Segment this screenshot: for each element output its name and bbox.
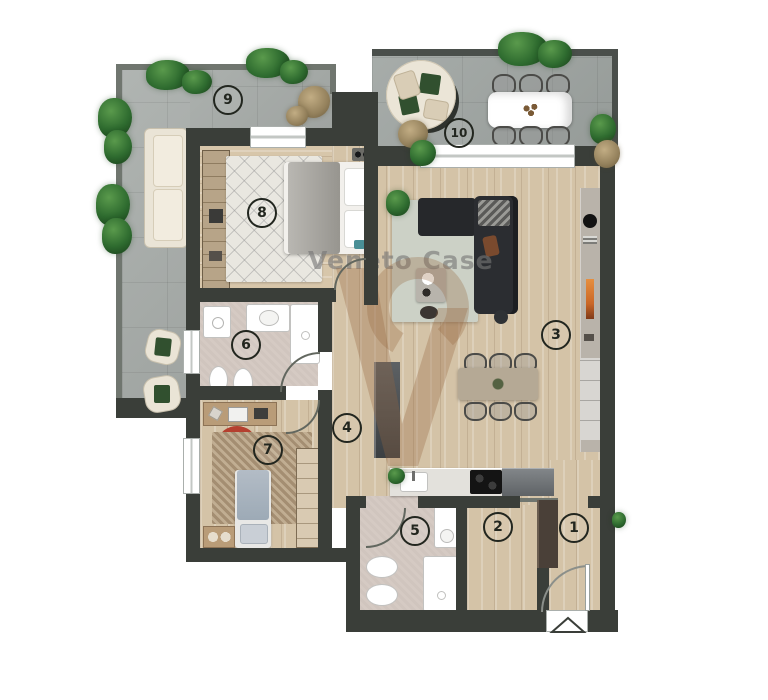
shower-drain — [437, 591, 446, 600]
side-table — [494, 310, 508, 324]
room-badge-4: 4 — [332, 413, 362, 443]
speaker — [583, 214, 597, 228]
round-lounge-chair — [386, 60, 456, 130]
fireplace — [582, 276, 598, 322]
books — [254, 408, 268, 419]
wall — [186, 548, 346, 562]
floor-plan: Veneto Case — [0, 0, 768, 700]
room-badge-8: 8 — [247, 198, 277, 228]
room-badge-3: 3 — [541, 320, 571, 350]
table-centerpiece — [520, 102, 542, 118]
room-number: 9 — [223, 92, 233, 108]
plant — [612, 512, 626, 528]
shelf-item — [583, 236, 597, 244]
sink — [440, 529, 454, 543]
room-number: 10 — [451, 126, 468, 140]
room-number: 3 — [551, 327, 561, 343]
armchair-cushion — [154, 385, 170, 403]
wall — [186, 288, 336, 302]
kitchen-cabinets — [502, 468, 554, 496]
room-badge-6: 6 — [231, 330, 261, 360]
washing-machine — [203, 306, 231, 338]
outdoor-dining-table — [488, 92, 572, 128]
bidet — [366, 584, 398, 606]
dresser — [203, 526, 235, 548]
room-number: 2 — [493, 519, 503, 535]
window — [183, 438, 200, 494]
shower-drain — [301, 331, 310, 340]
terrace-10-railing-top — [372, 49, 618, 56]
wall — [318, 390, 332, 548]
room-badge-10: 10 — [444, 118, 474, 148]
room-badge-7: 7 — [253, 435, 283, 465]
desk — [203, 402, 277, 426]
bed-pillow — [240, 524, 268, 544]
window — [250, 126, 306, 148]
armchair-cushion — [154, 337, 172, 357]
bathroom-vanity — [246, 304, 290, 332]
room-number: 8 — [257, 205, 267, 221]
bed-duvet — [288, 162, 340, 254]
room-badge-9: 9 — [213, 85, 243, 115]
media-wall-unit — [580, 188, 600, 452]
room-number: 7 — [263, 442, 273, 458]
wall — [332, 92, 378, 130]
sink — [259, 310, 279, 326]
single-bed — [235, 470, 271, 548]
lounge-pillow — [422, 98, 449, 122]
wall — [346, 496, 366, 508]
wall — [588, 496, 600, 508]
wardrobe-item — [209, 209, 223, 223]
dry-plant — [594, 140, 620, 168]
shelf-item — [584, 334, 594, 341]
bed-duvet — [237, 470, 269, 520]
wall — [186, 386, 286, 400]
kitchen-tall-cabinet — [580, 358, 600, 440]
sofa-cushion — [153, 135, 183, 187]
wall — [418, 496, 520, 508]
laptop — [228, 407, 248, 422]
room-badge-2: 2 — [483, 512, 513, 542]
wall — [318, 302, 332, 352]
wall — [346, 610, 546, 632]
dining-chair — [514, 402, 537, 421]
wardrobe-item — [209, 251, 222, 261]
room-number: 4 — [342, 420, 352, 436]
room-badge-1: 1 — [559, 513, 589, 543]
washer-door — [212, 317, 224, 329]
room-number: 6 — [241, 337, 251, 353]
room-badge-5: 5 — [400, 516, 430, 546]
bathroom-vanity — [434, 502, 458, 548]
sliding-glass-door — [420, 144, 575, 168]
wall — [456, 505, 467, 612]
desk-lamp — [208, 406, 223, 421]
sofa-blanket — [478, 200, 510, 226]
entrance-arrow-icon — [549, 615, 587, 635]
outdoor-sofa — [144, 128, 188, 248]
wall — [346, 508, 360, 610]
terrace-9-railing-right — [330, 64, 336, 94]
sofa-cushion — [153, 189, 183, 241]
shower — [423, 556, 458, 612]
room-number: 5 — [410, 523, 420, 539]
plant — [388, 468, 405, 484]
toilet — [366, 556, 398, 578]
lounge-cushion — [419, 73, 442, 96]
entrance-door-leaf — [586, 565, 589, 610]
entry-wardrobe — [537, 500, 558, 568]
room-number: 1 — [569, 520, 579, 536]
window — [183, 330, 200, 374]
sofa-chaise — [418, 198, 476, 236]
dining-chair — [489, 402, 512, 421]
lounge-pillow — [393, 69, 422, 101]
wall — [600, 146, 615, 632]
